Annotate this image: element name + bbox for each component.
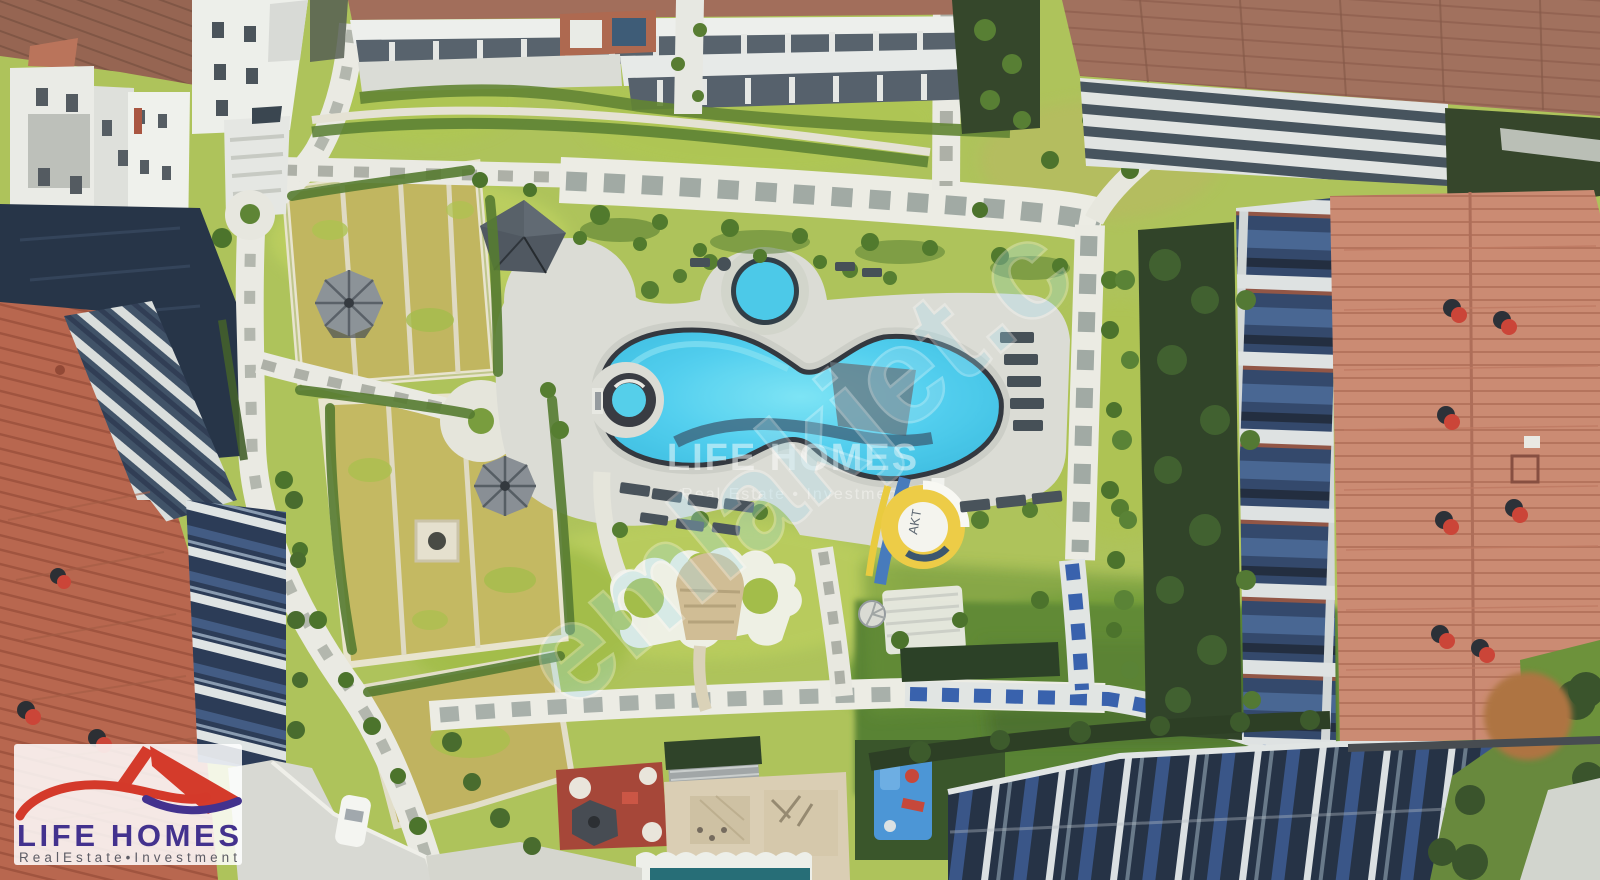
svg-text:R e a l E s t a t e • I n v: R e a l E s t a t e • I n v e s t m e n …	[19, 850, 237, 865]
